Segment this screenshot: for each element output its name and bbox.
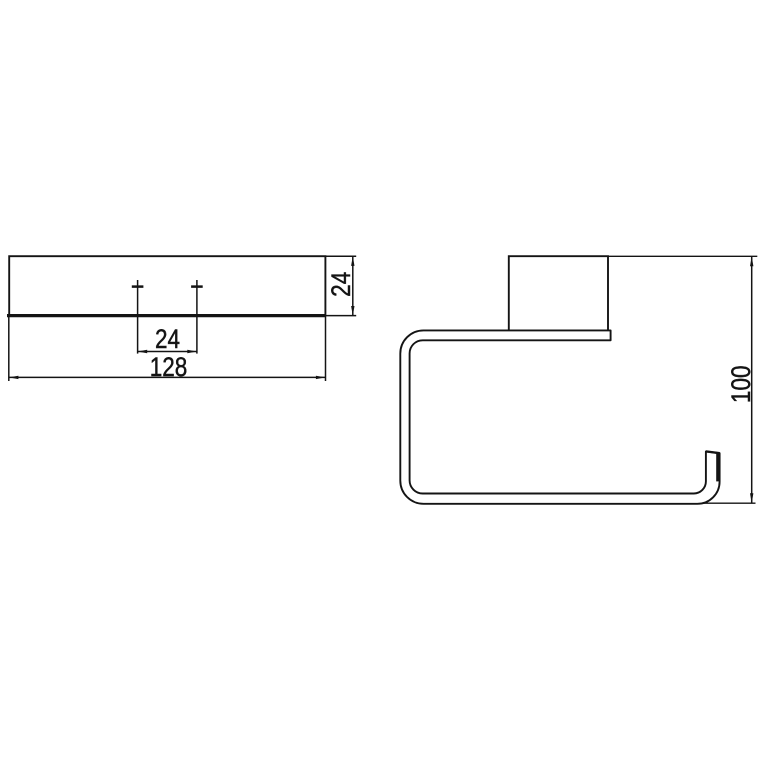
svg-text:128: 128 (150, 353, 188, 382)
svg-text:24: 24 (327, 272, 356, 297)
svg-text:100: 100 (727, 366, 756, 404)
svg-text:24: 24 (155, 326, 180, 355)
